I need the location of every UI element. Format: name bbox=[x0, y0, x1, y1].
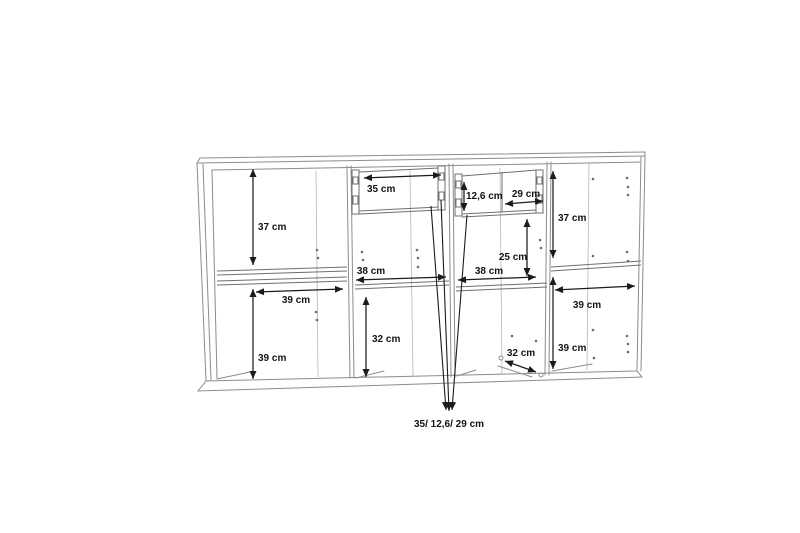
dim-label-s2-drawer-width: 35 cm bbox=[367, 184, 395, 195]
dim-label-s4-top-height: 37 cm bbox=[558, 213, 586, 224]
background bbox=[0, 0, 800, 533]
pin-hole bbox=[539, 239, 542, 242]
pin-hole bbox=[316, 319, 319, 322]
drawer1-left-slide-clip-2 bbox=[353, 196, 358, 204]
pin-hole bbox=[627, 260, 630, 263]
pin-hole bbox=[316, 249, 319, 252]
pin-hole-ring bbox=[539, 373, 543, 377]
pin-hole bbox=[511, 335, 514, 338]
diagram-canvas: 37 cm 39 cm 39 cm 35 cm 38 cm 32 cm 12,6… bbox=[0, 0, 800, 533]
pin-hole bbox=[315, 311, 318, 314]
dim-label-s4-shelf-width: 39 cm bbox=[573, 300, 601, 311]
pin-hole bbox=[417, 266, 420, 269]
pin-hole bbox=[361, 251, 364, 254]
drawer1-right-slide-clip bbox=[439, 173, 444, 180]
pin-hole bbox=[317, 257, 320, 260]
pin-hole bbox=[627, 351, 630, 354]
drawer2-left-slide-clip-2 bbox=[456, 199, 461, 207]
pin-hole-ring bbox=[499, 356, 503, 360]
pin-hole bbox=[535, 340, 538, 343]
pin-hole bbox=[626, 335, 629, 338]
pin-hole bbox=[593, 357, 596, 360]
drawer2-left-slide-clip bbox=[456, 181, 461, 188]
dim-label-s3-bottom-depth: 32 cm bbox=[507, 348, 535, 359]
pin-hole bbox=[626, 251, 629, 254]
dim-label-s2-shelf-width: 38 cm bbox=[357, 266, 385, 277]
dim-label-s3-drawer-height: 12,6 cm bbox=[466, 191, 503, 202]
drawer1-right-slide-clip-2 bbox=[439, 192, 444, 200]
drawer2-right-slide-clip bbox=[537, 177, 542, 184]
drawer2-left-slide-rail bbox=[455, 174, 462, 216]
pin-hole bbox=[627, 343, 630, 346]
dim-label-drawer-summary: 35/ 12,6/ 29 cm bbox=[414, 419, 484, 430]
pin-hole bbox=[362, 259, 365, 262]
dim-label-s1-bottom-height: 39 cm bbox=[258, 353, 286, 364]
dim-label-s1-top-height: 37 cm bbox=[258, 222, 286, 233]
dim-label-s3-shelf-width: 38 cm bbox=[475, 266, 503, 277]
drawer1-left-slide-clip bbox=[353, 177, 358, 184]
dim-label-s2-bottom-height: 32 cm bbox=[372, 334, 400, 345]
furniture-dimension-diagram: 37 cm 39 cm 39 cm 35 cm 38 cm 32 cm 12,6… bbox=[0, 0, 800, 533]
dim-label-s4-bottom-height: 39 cm bbox=[558, 343, 586, 354]
pin-hole bbox=[540, 247, 543, 250]
dim-label-s3-mid-height: 25 cm bbox=[499, 252, 527, 263]
dim-label-s3-drawer-width: 29 cm bbox=[512, 189, 540, 200]
pin-hole bbox=[627, 186, 630, 189]
pin-hole bbox=[626, 177, 629, 180]
pin-hole bbox=[416, 249, 419, 252]
dim-label-s1-shelf-width: 39 cm bbox=[282, 295, 310, 306]
pin-hole bbox=[592, 255, 595, 258]
pin-hole bbox=[592, 178, 595, 181]
pin-hole bbox=[627, 194, 630, 197]
pin-hole bbox=[417, 257, 420, 260]
pin-hole bbox=[592, 329, 595, 332]
